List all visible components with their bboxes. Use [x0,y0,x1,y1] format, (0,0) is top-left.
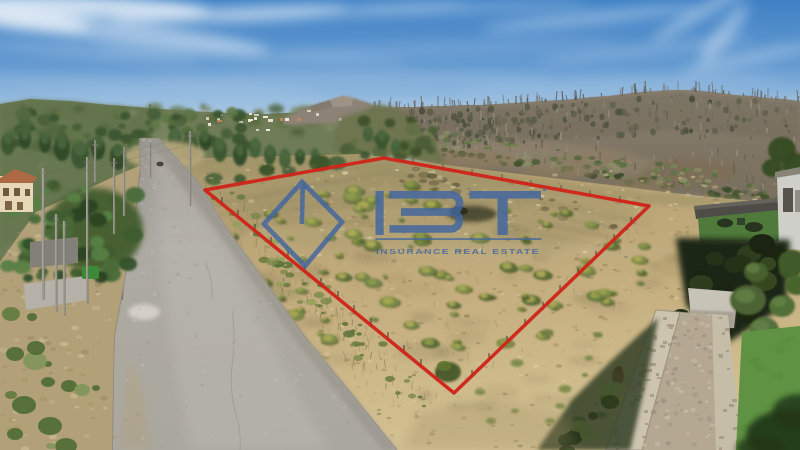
svg-text:INSURANCE REAL ESTATE: INSURANCE REAL ESTATE [376,249,540,256]
